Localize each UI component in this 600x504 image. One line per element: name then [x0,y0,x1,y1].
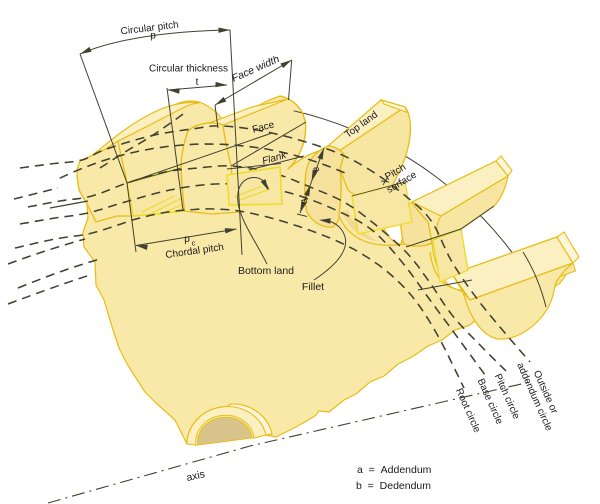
svg-text:Face width: Face width [230,53,281,85]
svg-text:p: p [150,31,156,42]
svg-text:b = Dedendum: b = Dedendum [356,480,431,492]
svg-text:a = Addendum: a = Addendum [357,464,432,476]
svg-text:axis: axis [185,468,206,484]
svg-text:Bottom land: Bottom land [238,265,294,277]
svg-text:Fillet: Fillet [302,281,324,293]
svg-text:Circular thickness: Circular thickness [149,64,228,75]
svg-text:t: t [196,77,199,88]
svg-text:p: p [184,234,190,245]
